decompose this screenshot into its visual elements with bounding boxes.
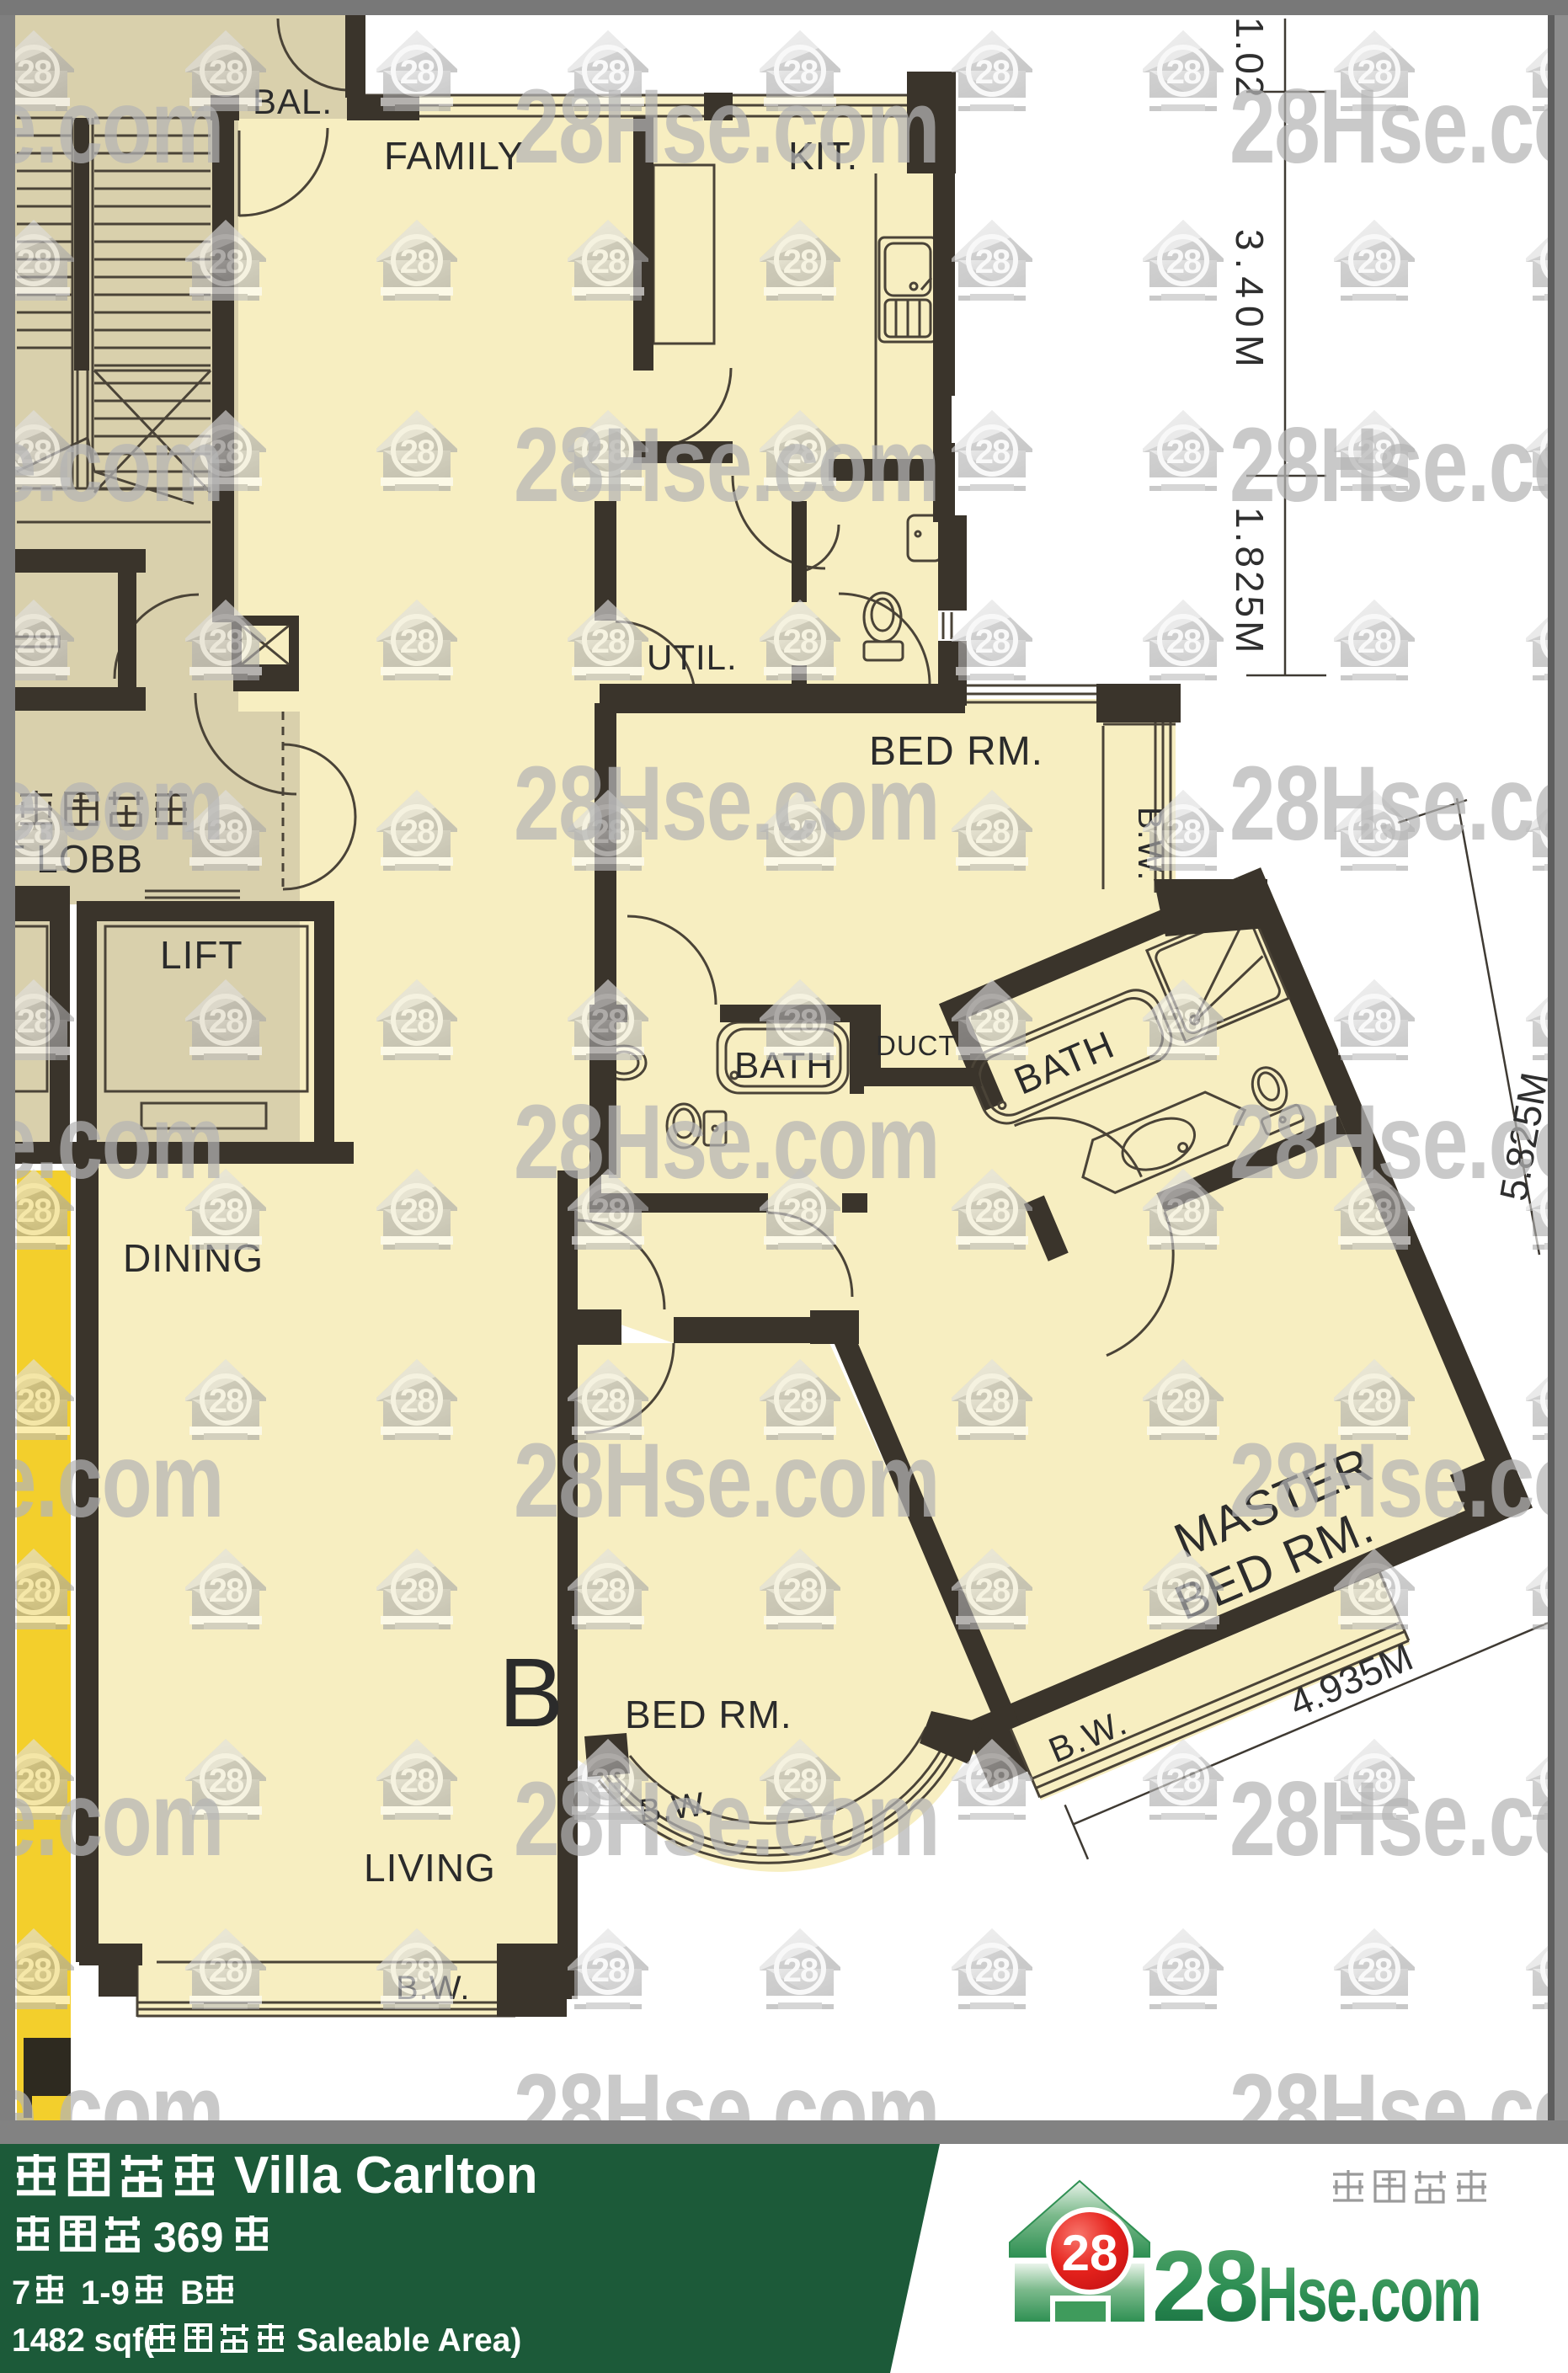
svg-text:28Hse.com: 28Hse.com <box>514 1422 939 1539</box>
svg-text:LIFT: LIFT <box>160 933 243 977</box>
svg-text:28Hse.com: 28Hse.com <box>0 745 223 862</box>
svg-text:28Hse.com: 28Hse.com <box>1229 1761 1568 1878</box>
svg-text:28Hse.com: 28Hse.com <box>0 1084 223 1201</box>
svg-text:7: 7 <box>12 2274 30 2312</box>
svg-text:UTIL.: UTIL. <box>647 637 738 677</box>
svg-text:369: 369 <box>153 2214 223 2261</box>
svg-text:28Hse.com: 28Hse.com <box>514 745 939 862</box>
svg-text:28Hse.com: 28Hse.com <box>1229 1422 1568 1539</box>
svg-text:Hse.com: Hse.com <box>1258 2252 1480 2338</box>
svg-text:28Hse.com: 28Hse.com <box>1229 1084 1568 1201</box>
svg-text:28Hse.com: 28Hse.com <box>514 68 939 185</box>
svg-text:LIVING: LIVING <box>364 1846 496 1890</box>
svg-text:28Hse.com: 28Hse.com <box>0 1761 223 1878</box>
svg-text:Saleable Area): Saleable Area) <box>296 2322 521 2359</box>
svg-text:1482 sqf(: 1482 sqf( <box>12 2322 154 2359</box>
svg-text:28Hse.com: 28Hse.com <box>0 68 223 185</box>
svg-text:28Hse.com: 28Hse.com <box>0 407 223 524</box>
svg-text:28Hse.com: 28Hse.com <box>514 407 939 524</box>
svg-text:FAMILY: FAMILY <box>384 134 524 178</box>
svg-text:3.40M: 3.40M <box>1228 229 1272 375</box>
svg-text:1.825M: 1.825M <box>1228 507 1272 656</box>
svg-text:1-9: 1-9 <box>81 2274 130 2312</box>
svg-text:28: 28 <box>1152 2230 1256 2343</box>
svg-text:28Hse.com: 28Hse.com <box>1229 745 1568 862</box>
svg-text:B: B <box>499 1638 563 1747</box>
svg-text:28Hse.com: 28Hse.com <box>1229 407 1568 524</box>
svg-text:B: B <box>180 2274 205 2312</box>
svg-text:BAL.: BAL. <box>253 82 333 121</box>
svg-text:28: 28 <box>1062 2225 1118 2281</box>
svg-text:BED RM.: BED RM. <box>625 1693 792 1736</box>
svg-text:28Hse.com: 28Hse.com <box>514 1761 939 1878</box>
svg-text:28Hse.com: 28Hse.com <box>0 1422 223 1539</box>
svg-text:DUCT: DUCT <box>876 1030 957 1061</box>
svg-text:28Hse.com: 28Hse.com <box>514 1084 939 1201</box>
svg-text:28Hse.com: 28Hse.com <box>1229 68 1568 185</box>
svg-text:Villa Carlton: Villa Carlton <box>234 2146 538 2205</box>
